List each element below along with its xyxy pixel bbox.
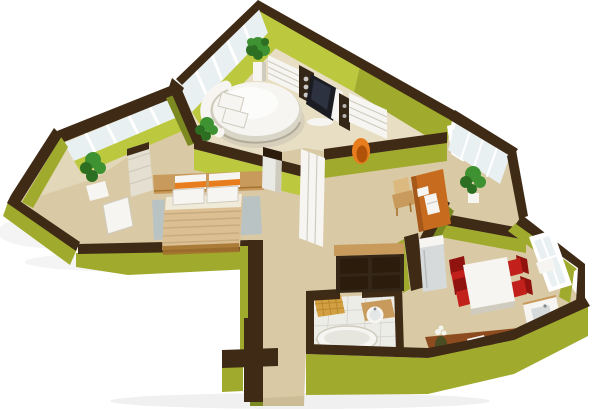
- bedroom-wardrobe: [127, 142, 153, 197]
- apartment-3d-floor-plan: [0, 0, 600, 411]
- shelf-cabinet: [334, 243, 404, 293]
- egg-chair: [352, 138, 370, 164]
- pillow: [173, 188, 204, 205]
- pillow: [207, 186, 238, 203]
- hall-pillar: [262, 147, 282, 193]
- speaker: [339, 93, 350, 131]
- dining-table: [463, 257, 515, 309]
- tap: [543, 304, 546, 307]
- tv-base: [307, 118, 333, 126]
- fridge: [419, 235, 447, 292]
- hall-wardrobe: [299, 149, 325, 247]
- floor-plan-render: [0, 0, 600, 411]
